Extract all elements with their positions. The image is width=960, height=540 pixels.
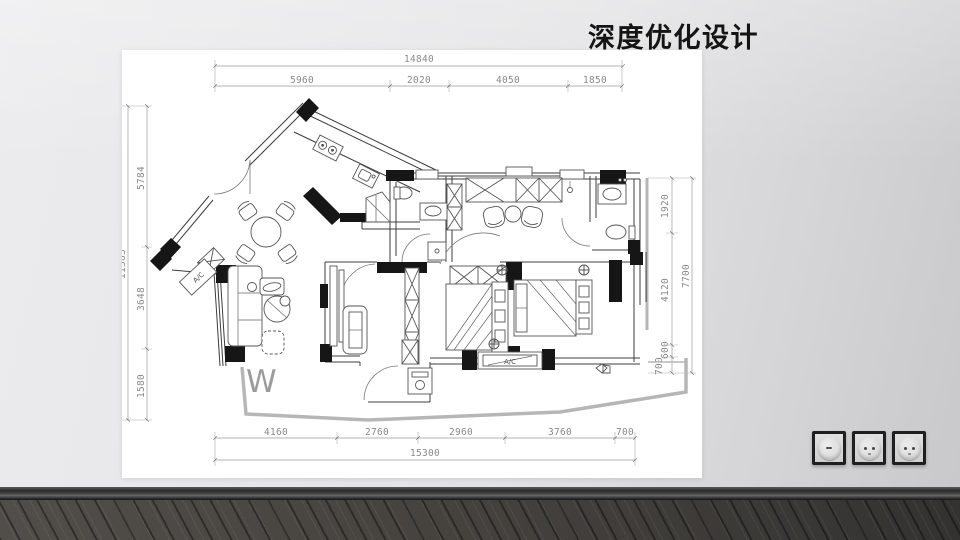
armchair <box>482 205 506 229</box>
tall-cabinet <box>330 266 337 346</box>
wood-floor <box>0 487 960 540</box>
wall-socket-row <box>812 431 926 465</box>
dim-bottom-total: 15300 <box>410 448 440 459</box>
walls <box>150 98 646 402</box>
washing-machine <box>408 368 432 394</box>
toilet <box>606 225 626 239</box>
baseboard-molding <box>0 487 960 499</box>
wardrobe-top <box>466 178 562 202</box>
dimensions-left: 11383 5784 3648 1580 <box>122 106 152 420</box>
power-outlet <box>852 431 886 465</box>
armchair <box>520 205 544 229</box>
dim-right-total: 7700 <box>681 264 692 288</box>
wardrobe-column <box>447 184 462 230</box>
floor-plan-sheet: 14840 5960 2020 4050 1850 4160 2760 2960… <box>122 50 702 478</box>
bathroom-left <box>394 187 447 260</box>
dim-right-1: 1920 <box>660 194 671 218</box>
dim-right-2: 4120 <box>660 278 671 302</box>
dining-chair <box>277 243 299 265</box>
dim-bottom-5: 700 <box>616 427 634 438</box>
dim-top-total: 14840 <box>404 54 434 65</box>
dim-bottom-3: 2960 <box>449 427 473 438</box>
dim-top-4: 1850 <box>583 75 607 86</box>
dim-bottom-4: 3760 <box>548 427 572 438</box>
dim-bottom-1: 4160 <box>264 427 288 438</box>
dimensions-bottom: 4160 2760 2960 3760 700 15300 <box>215 427 635 466</box>
floor-plan-drawing: 14840 5960 2020 4050 1850 4160 2760 2960… <box>122 50 702 478</box>
balcony-plant <box>596 364 610 373</box>
stove <box>313 135 343 161</box>
dim-right-4: 700 <box>654 357 665 375</box>
dining-chair <box>236 199 258 221</box>
ottoman <box>262 331 284 354</box>
dim-top-1: 5960 <box>290 75 314 86</box>
dim-top-2: 2020 <box>407 75 431 86</box>
ceiling-lamp <box>568 181 573 193</box>
dim-left-2: 3648 <box>136 287 147 311</box>
dim-left-1: 5784 <box>136 166 147 190</box>
fridge <box>366 192 390 222</box>
study-room <box>330 266 367 354</box>
watermark-w: W <box>246 364 279 400</box>
loveseat <box>343 306 367 354</box>
living-area: W <box>228 266 290 400</box>
floor-planks <box>0 499 960 540</box>
dining-chair <box>234 243 256 265</box>
dimensions-top: 14840 5960 2020 4050 1850 <box>215 54 623 92</box>
power-outlet <box>892 431 926 465</box>
bathroom-right <box>598 179 635 240</box>
cabinet-x <box>402 340 418 364</box>
presentation-slide: 深度优化设计 14840 5960 2020 4050 1850 4160 27… <box>0 0 960 540</box>
dining-chair <box>275 199 297 221</box>
potted-plant <box>264 296 290 322</box>
switch-symbol <box>579 265 589 275</box>
dim-left-3: 1580 <box>136 374 147 398</box>
side-table <box>505 206 521 222</box>
switch-symbol <box>497 265 507 275</box>
switch-symbol <box>489 339 499 349</box>
dining-table <box>251 217 281 247</box>
dim-top-3: 4050 <box>496 75 520 86</box>
ac-unit-bottom: A/C <box>478 352 542 369</box>
dim-bottom-2: 2760 <box>365 427 389 438</box>
kitchen-sink <box>353 164 380 188</box>
dim-left-total: 11383 <box>122 249 128 279</box>
dim-right-3: 600 <box>660 341 671 359</box>
dimensions-right: 1920 4120 600 700 7700 <box>648 178 696 375</box>
ac-unit-bottom-label: A/C <box>504 358 516 366</box>
bedroom-right <box>514 280 592 336</box>
blank-button-plate <box>812 431 846 465</box>
